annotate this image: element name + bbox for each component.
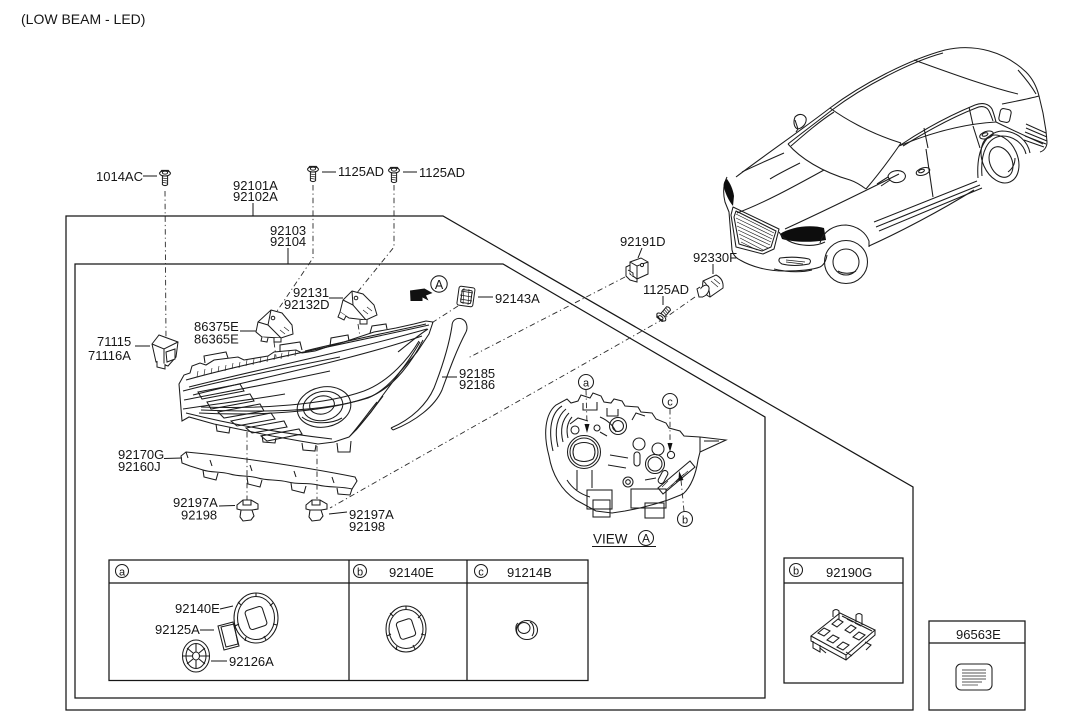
svg-text:71115: 71115: [97, 334, 131, 349]
svg-text:92132D: 92132D: [284, 297, 330, 312]
svg-text:92140E: 92140E: [175, 601, 220, 616]
svg-text:b: b: [357, 567, 363, 579]
svg-text:c: c: [478, 567, 484, 579]
svg-text:VIEW: VIEW: [593, 532, 628, 547]
svg-text:92198: 92198: [349, 519, 385, 534]
svg-text:1125AD: 1125AD: [338, 164, 384, 179]
svg-text:91214B: 91214B: [507, 565, 552, 580]
svg-text:1125AD: 1125AD: [419, 165, 465, 180]
svg-text:1125AD: 1125AD: [643, 282, 689, 297]
svg-text:92104: 92104: [270, 234, 306, 249]
svg-text:96563E: 96563E: [956, 627, 1001, 642]
svg-text:92160J: 92160J: [118, 459, 161, 474]
svg-text:a: a: [583, 378, 590, 390]
svg-text:92191D: 92191D: [620, 234, 666, 249]
svg-text:92140E: 92140E: [389, 565, 434, 580]
svg-text:b: b: [682, 515, 688, 527]
svg-text:71116A: 71116A: [88, 348, 131, 363]
svg-text:92198: 92198: [181, 508, 217, 523]
svg-text:A: A: [642, 532, 650, 546]
svg-text:92143A: 92143A: [495, 291, 540, 306]
svg-text:92102A: 92102A: [233, 189, 278, 204]
svg-text:c: c: [667, 397, 673, 409]
svg-text:92190G: 92190G: [826, 565, 872, 580]
svg-text:92125A: 92125A: [155, 622, 200, 637]
svg-text:1014AC: 1014AC: [96, 169, 143, 184]
svg-text:A: A: [435, 278, 444, 292]
svg-text:a: a: [119, 567, 126, 579]
svg-text:(LOW BEAM - LED): (LOW BEAM - LED): [21, 11, 145, 27]
svg-text:86365E: 86365E: [194, 332, 239, 347]
svg-text:92330F: 92330F: [693, 250, 737, 265]
svg-text:92126A: 92126A: [229, 654, 274, 669]
svg-text:b: b: [793, 566, 799, 578]
svg-text:92186: 92186: [459, 377, 495, 392]
